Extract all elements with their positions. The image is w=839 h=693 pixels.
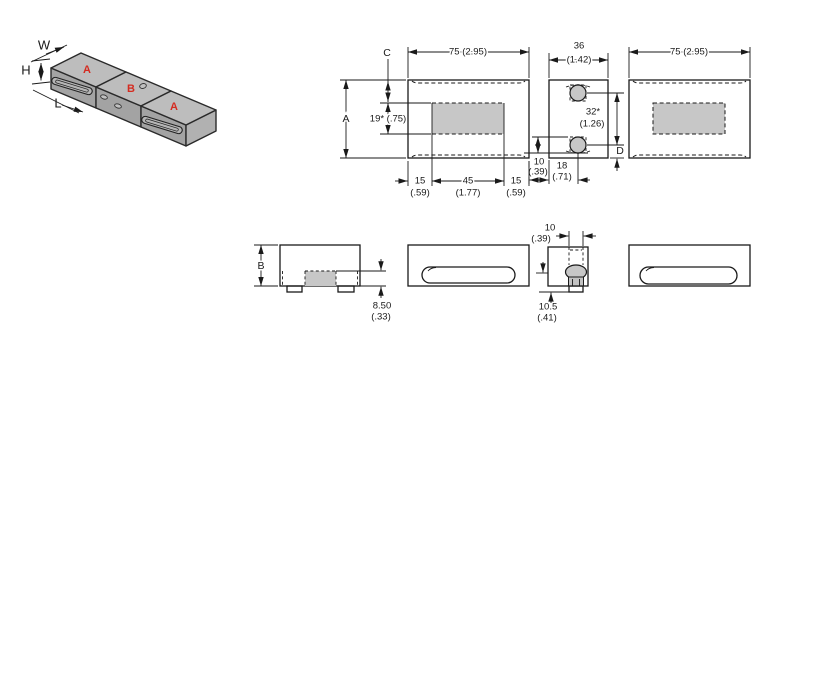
profile-depth-dim: 8.50 [373, 301, 392, 312]
front-c-label: C [383, 47, 391, 59]
slot-face-view-left [408, 245, 529, 286]
slot-opening [640, 267, 737, 284]
front-view-recess [432, 103, 504, 134]
front-width-dim: 75 (2.95) [449, 47, 487, 58]
front-center-dim-in: (1.77) [456, 188, 481, 199]
terminal-height-dim-in: (.41) [537, 313, 557, 324]
channel-width-dim: 10 [545, 223, 556, 234]
front-right-dim: 15 [511, 176, 522, 187]
channel-width-dim-in: (.39) [531, 234, 551, 245]
profile-b-label: B [257, 260, 264, 272]
end-offset-dim-in: (.71) [552, 172, 572, 183]
block2-label: B [127, 83, 135, 95]
front-center-dim: 45 [463, 176, 474, 187]
front-right-dim-in: (.59) [506, 188, 526, 199]
slot-view-outline [629, 245, 750, 286]
profile-foot-right [338, 286, 354, 292]
terminal-height-dim: 10.5 [539, 302, 558, 313]
front-left-dim: 15 [415, 176, 426, 187]
end-pitch-dim: 32* [586, 107, 601, 118]
slot-view-outline [408, 245, 529, 286]
front-left-dim-in: (.59) [410, 188, 430, 199]
back-width-dim: 75 (2.95) [670, 47, 708, 58]
end-width-dim-in: (1.42) [567, 55, 592, 66]
end-pitch-dim-in: (1.26) [580, 119, 605, 130]
iso-length-label: L [54, 96, 61, 111]
back-view: 75 (2.95) [629, 47, 750, 159]
front-recess-dim: 19* (.75) [370, 114, 406, 125]
drawing-svg: W H L A B A 75 (2.95) C [0, 0, 839, 693]
profile-foot-left [287, 286, 302, 292]
end-profile-view: 10 (.39) 10.5 (.41) [531, 223, 596, 324]
profile-depth-dim-in: (.33) [371, 312, 391, 323]
block1-label: A [83, 64, 91, 76]
slot-opening [422, 267, 515, 283]
iso-width-label: W [38, 38, 51, 53]
end-offset-dim: 18 [557, 161, 568, 172]
end-profile-foot [569, 286, 583, 292]
end-profile-tab [569, 277, 584, 286]
iso-height-label: H [21, 63, 30, 78]
isometric-view: W H L A B A [21, 38, 216, 147]
side-profile-view: B 8.50 (.33) [254, 245, 391, 323]
end-view-hole-top [570, 85, 586, 101]
front-a-label: A [342, 113, 349, 125]
block3-label: A [170, 101, 178, 113]
end-hole-dim-in: (.39) [528, 167, 548, 178]
end-width-dim: 36 [574, 41, 585, 52]
slot-face-view-right [629, 245, 750, 286]
end-d-label: D [616, 145, 624, 157]
front-view: 75 (2.95) C A 19* (.75) 15 45 15 (.59) (… [340, 47, 542, 199]
back-view-recess [653, 103, 725, 134]
profile-recess [305, 271, 336, 286]
technical-drawing-canvas: W H L A B A 75 (2.95) C [0, 0, 839, 693]
end-view: 36 (1.42) 32* (1.26) D 10 (.39) 18 (.71) [524, 41, 624, 185]
end-view-hole-bottom [570, 137, 586, 153]
